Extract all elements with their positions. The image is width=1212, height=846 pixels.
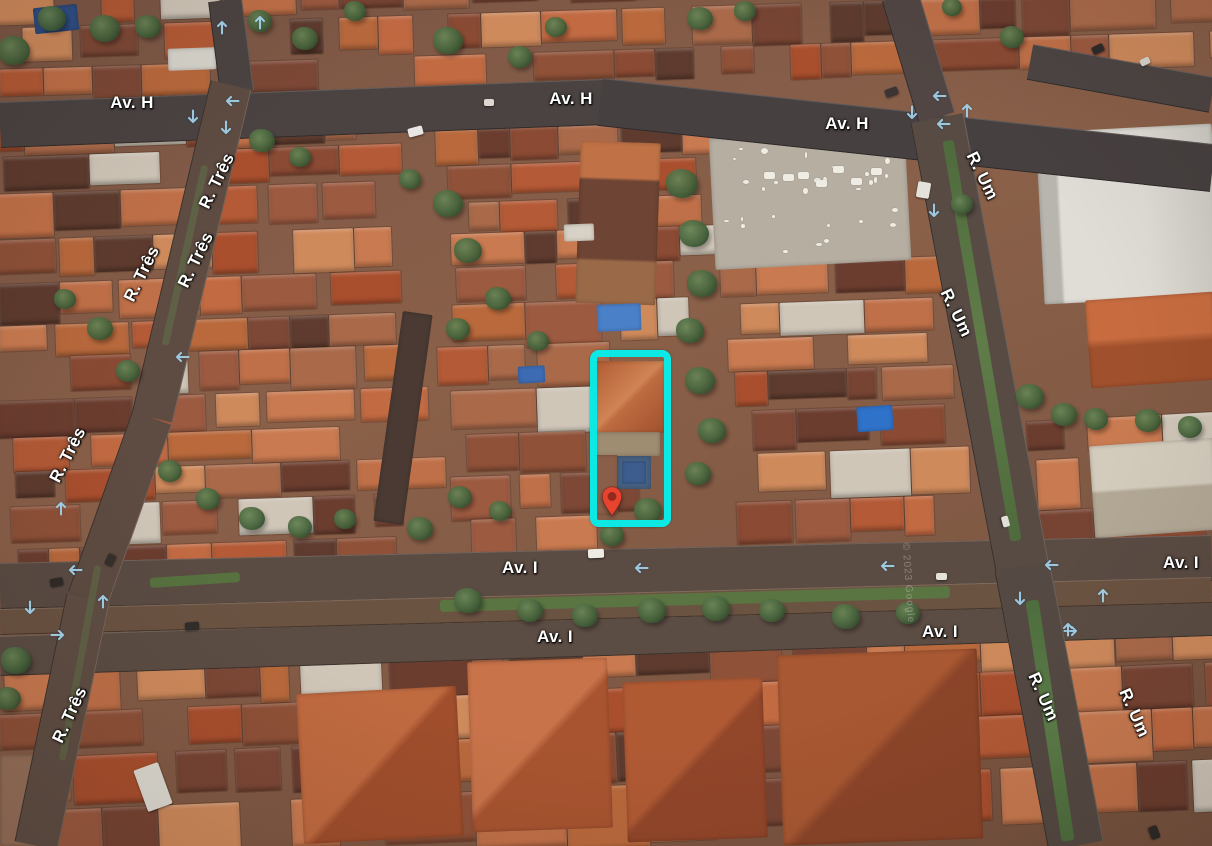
traffic-direction-arrow-icon: [1095, 588, 1111, 604]
traffic-direction-arrow-icon: [22, 599, 38, 615]
traffic-direction-arrow-icon: [936, 116, 952, 132]
traffic-direction-arrow-icon: [1044, 557, 1060, 573]
street-label: Av. I: [502, 558, 538, 578]
traffic-direction-arrow-icon: [959, 103, 975, 119]
street-label: Av. I: [922, 622, 958, 642]
satellite-map[interactable]: Av. HAv. HAv. HAv. IAv. IAv. IAv. IR. Tr…: [0, 0, 1212, 846]
traffic-direction-arrow-icon: [634, 560, 650, 576]
traffic-direction-arrow-icon: [926, 202, 942, 218]
traffic-direction-arrow-icon: [1012, 590, 1028, 606]
traffic-direction-arrow-icon: [252, 15, 268, 31]
traffic-direction-arrow-icon: [185, 108, 201, 124]
street-label: Av. I: [537, 627, 573, 647]
traffic-direction-arrow-icon: [68, 562, 84, 578]
traffic-direction-arrow-icon: [225, 93, 241, 109]
traffic-direction-arrow-icon: [175, 349, 191, 365]
traffic-direction-arrow-icon: [49, 627, 65, 643]
traffic-direction-arrow-icon: [932, 88, 948, 104]
traffic-direction-arrow-icon: [214, 20, 230, 36]
traffic-direction-arrow-icon: [95, 594, 111, 610]
traffic-direction-arrow-icon: [904, 104, 920, 120]
traffic-direction-arrow-icon: [1060, 622, 1076, 638]
traffic-direction-arrow-icon: [53, 501, 69, 517]
street-label: Av. I: [1163, 553, 1199, 573]
street-label: Av. H: [110, 93, 154, 113]
traffic-direction-arrow-icon: [218, 119, 234, 135]
street-label: Av. H: [549, 89, 593, 109]
traffic-direction-arrow-icon: [880, 558, 896, 574]
street-label: Av. H: [825, 114, 869, 134]
